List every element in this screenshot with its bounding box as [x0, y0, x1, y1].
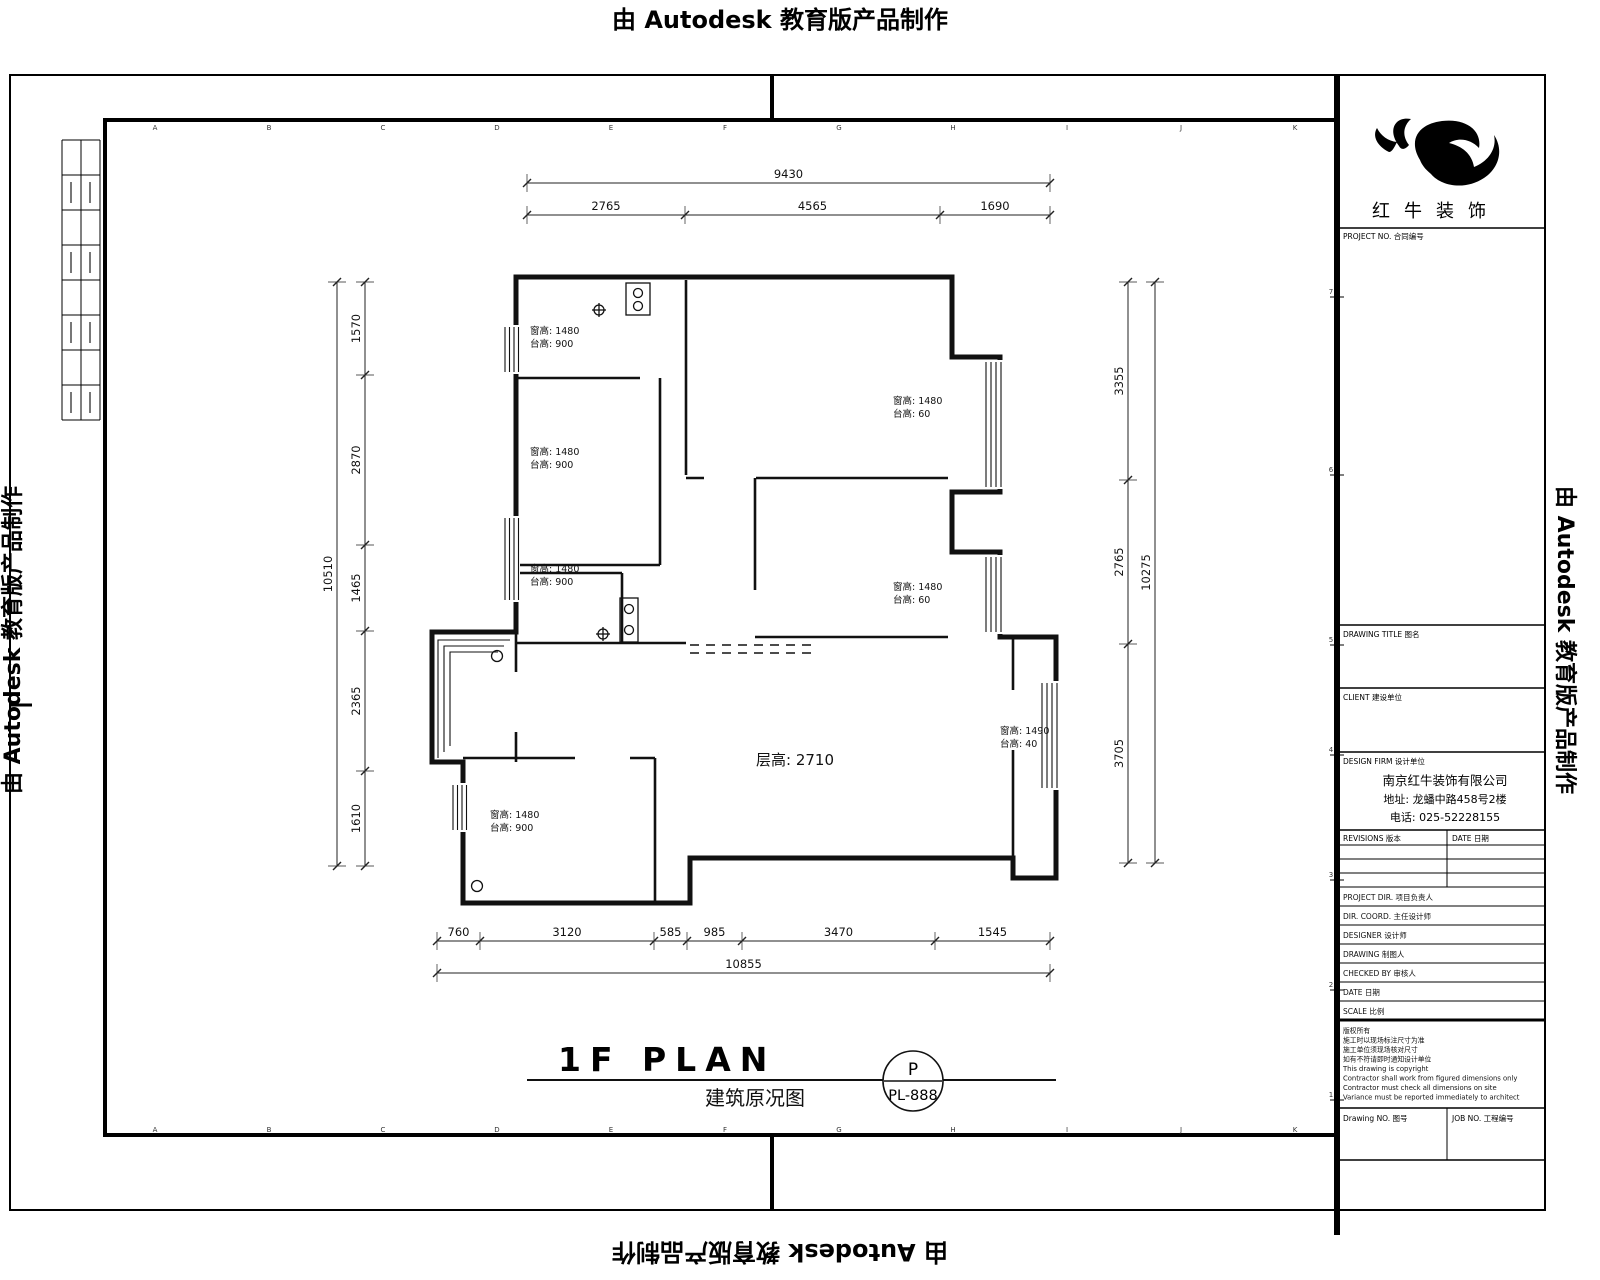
grid-column-label: G	[836, 124, 841, 132]
grid-column-label: F	[723, 124, 727, 132]
grid-row-label: 5	[1329, 636, 1333, 644]
dimension-label: 1465	[349, 573, 363, 602]
window-note-line1: 窗高: 1490	[1000, 725, 1049, 737]
revisions-label: REVISIONS 版本	[1343, 833, 1401, 843]
grid-column-label: C	[381, 124, 386, 132]
window-note-line2: 台高: 900	[530, 576, 573, 588]
window-note-line1: 窗高: 1480	[893, 581, 942, 593]
dimension-label: 3120	[552, 925, 581, 939]
grid-column-label: D	[494, 1126, 499, 1134]
dim-top-segments: 276545651690	[523, 199, 1054, 224]
dimension-label: 585	[660, 925, 682, 939]
job-no-label: JOB NO. 工程编号	[1451, 1113, 1514, 1123]
title-block: 红牛装饰 PROJECT NO. 合同编号 DRAWING TITLE 图名 C…	[1337, 119, 1545, 1160]
personnel-rows: PROJECT DIR. 项目负责人DIR. COORD. 主任设计师DESIG…	[1337, 892, 1545, 1020]
dimension-label: 2365	[349, 686, 363, 715]
grid-column-label: K	[1293, 124, 1298, 132]
window-note-line2: 台高: 60	[893, 408, 930, 420]
dim-top-total: 9430	[523, 167, 1054, 192]
copyright-note-line: Variance must be reported immediately to…	[1343, 1094, 1520, 1102]
dimension-label: 3355	[1112, 366, 1126, 395]
grid-column-label: D	[494, 124, 499, 132]
window-kitchen-left	[504, 325, 520, 374]
window-note-line1: 窗高: 1480	[530, 446, 579, 458]
window-note-line1: 窗高: 1480	[893, 395, 942, 407]
banner-left: 由 Autodesk 教育版产品制作	[0, 486, 26, 794]
dimension-label: 10275	[1139, 554, 1153, 591]
dimension-label: 9430	[774, 167, 803, 181]
badge-letter: P	[908, 1060, 918, 1080]
grid-column-label: J	[1179, 1126, 1182, 1134]
company-name: 南京红牛装饰有限公司	[1382, 773, 1507, 788]
copyright-note-line: 施工时以现场标注尺寸为准	[1343, 1036, 1425, 1045]
drawing-title-label: DRAWING TITLE 图名	[1343, 629, 1420, 639]
copyright-note-line: This drawing is copyright	[1342, 1065, 1429, 1073]
window-bedroomA-left	[504, 516, 520, 602]
bay-window-topright	[983, 360, 1003, 489]
grid-column-label: J	[1179, 124, 1182, 132]
drawing-no-label: Drawing NO. 图号	[1343, 1114, 1408, 1123]
dimension-label: 1690	[980, 199, 1009, 213]
grid-row-label: 2	[1329, 981, 1333, 989]
grid-column-label: B	[267, 1126, 272, 1134]
grid-row-label: 1	[1329, 1091, 1333, 1099]
grid-column-label: I	[1066, 1126, 1068, 1134]
dimension-label: 10855	[725, 957, 762, 971]
grid-column-label: H	[950, 1126, 955, 1134]
cad-sheet: 由 Autodesk 教育版产品制作 由 Autodesk 教育版产品制作 由 …	[0, 0, 1600, 1280]
copyright-note-line: 版权所有	[1343, 1026, 1370, 1035]
grid-column-label: I	[1066, 124, 1068, 132]
banner-right: 由 Autodesk 教育版产品制作	[1552, 486, 1578, 794]
badge-code: PL-888	[888, 1088, 937, 1104]
company-phone: 电话: 025-52228155	[1390, 811, 1500, 824]
grid-column-label: E	[609, 1126, 613, 1134]
dimension-label: 2765	[1112, 547, 1126, 576]
window-note-line2: 台高: 900	[530, 338, 573, 350]
grid-column-label: G	[836, 1126, 841, 1134]
dimension-label: 3470	[824, 925, 853, 939]
client-label: CLIENT 建设单位	[1343, 692, 1402, 702]
dimension-label: 2765	[591, 199, 620, 213]
binding-strip-table	[62, 140, 100, 420]
personnel-row-label: PROJECT DIR. 项目负责人	[1343, 892, 1433, 902]
dimension-label: 10510	[321, 556, 335, 593]
window-note-line2: 台高: 40	[1000, 738, 1037, 750]
copyright-note-line: 施工单位须现场核对尺寸	[1343, 1045, 1418, 1054]
personnel-row-label: SCALE 比例	[1343, 1006, 1384, 1016]
dim-right-total: 10275	[1139, 278, 1164, 867]
grid-row-label: 6	[1329, 466, 1334, 474]
dim-left-segments: 15702870146523651610	[349, 278, 374, 870]
grid-column-label: E	[609, 124, 613, 132]
dimension-label: 1570	[349, 314, 363, 343]
dimension-label: 760	[448, 925, 470, 939]
dimension-label: 1545	[978, 925, 1007, 939]
floor-height-label: 层高: 2710	[756, 751, 834, 769]
company-address: 地址: 龙蟠中路458号2楼	[1383, 792, 1506, 806]
grid-column-label: A	[153, 124, 158, 132]
personnel-row-label: DIR. COORD. 主任设计师	[1343, 911, 1431, 921]
brand-name: 红牛装饰	[1372, 201, 1500, 222]
window-bottomleft-bedroom	[451, 783, 467, 832]
dim-left-total: 10510	[321, 278, 346, 870]
dimension-label: 2870	[349, 445, 363, 474]
grid-column-label: A	[153, 1126, 158, 1134]
grid-column-label: F	[723, 1126, 727, 1134]
grid-row-label: 7	[1329, 288, 1333, 296]
grid-column-label: B	[267, 124, 272, 132]
window-note-line2: 台高: 60	[893, 594, 930, 606]
copyright-notes: 版权所有施工时以现场标注尺寸为准施工单位须现场核对尺寸如有不符请即时通知设计单位…	[1342, 1026, 1520, 1102]
copyright-note-line: Contractor must check all dimensions on …	[1343, 1084, 1497, 1092]
design-firm-label: DESIGN FIRM 设计单位	[1343, 756, 1425, 766]
grid-row-label: 3	[1329, 871, 1333, 879]
plan-subtitle: 建筑原况图	[705, 1086, 805, 1110]
dim-bottom-total: 10855	[433, 957, 1054, 982]
window-note-line1: 窗高: 1480	[530, 563, 579, 575]
rednbull-brand-logo	[1375, 119, 1499, 186]
revisions-date-label: DATE 日期	[1452, 834, 1489, 843]
grid-column-label: H	[950, 124, 955, 132]
copyright-note-line: 如有不符请即时通知设计单位	[1343, 1055, 1432, 1064]
grid-column-label: K	[1293, 1126, 1298, 1134]
banner-top: 由 Autodesk 教育版产品制作	[612, 6, 948, 34]
personnel-row-label: DRAWING 制图人	[1343, 949, 1405, 959]
dimension-label: 985	[704, 925, 726, 939]
bay-window-midright	[983, 555, 1003, 634]
window-note-line2: 台高: 900	[490, 822, 533, 834]
grid-column-label: C	[381, 1126, 386, 1134]
dim-right-segments: 335527653705	[1112, 278, 1137, 867]
dim-bottom-segments: 760312058598534701545	[433, 925, 1054, 950]
grid-row-label: 4	[1329, 746, 1334, 754]
window-note-line1: 窗高: 1480	[530, 325, 579, 337]
personnel-row-label: DESIGNER 设计师	[1343, 930, 1407, 940]
window-note-line2: 台高: 900	[530, 459, 573, 471]
personnel-row-label: CHECKED BY 审核人	[1343, 968, 1416, 978]
dimension-label: 4565	[798, 199, 827, 213]
window-note-line1: 窗高: 1480	[490, 809, 539, 821]
drawing-title: 1F PLAN 建筑原况图 P PL-888	[527, 1040, 1056, 1111]
banner-bottom: 由 Autodesk 教育版产品制作	[612, 1238, 948, 1266]
dimension-label: 1610	[349, 804, 363, 833]
personnel-row-label: DATE 日期	[1343, 988, 1380, 997]
plan-title: 1F PLAN	[558, 1040, 776, 1079]
dimension-label: 3705	[1112, 739, 1126, 768]
project-no-label: PROJECT NO. 合同编号	[1343, 231, 1424, 241]
copyright-note-line: Contractor shall work from figured dimen…	[1343, 1075, 1517, 1083]
